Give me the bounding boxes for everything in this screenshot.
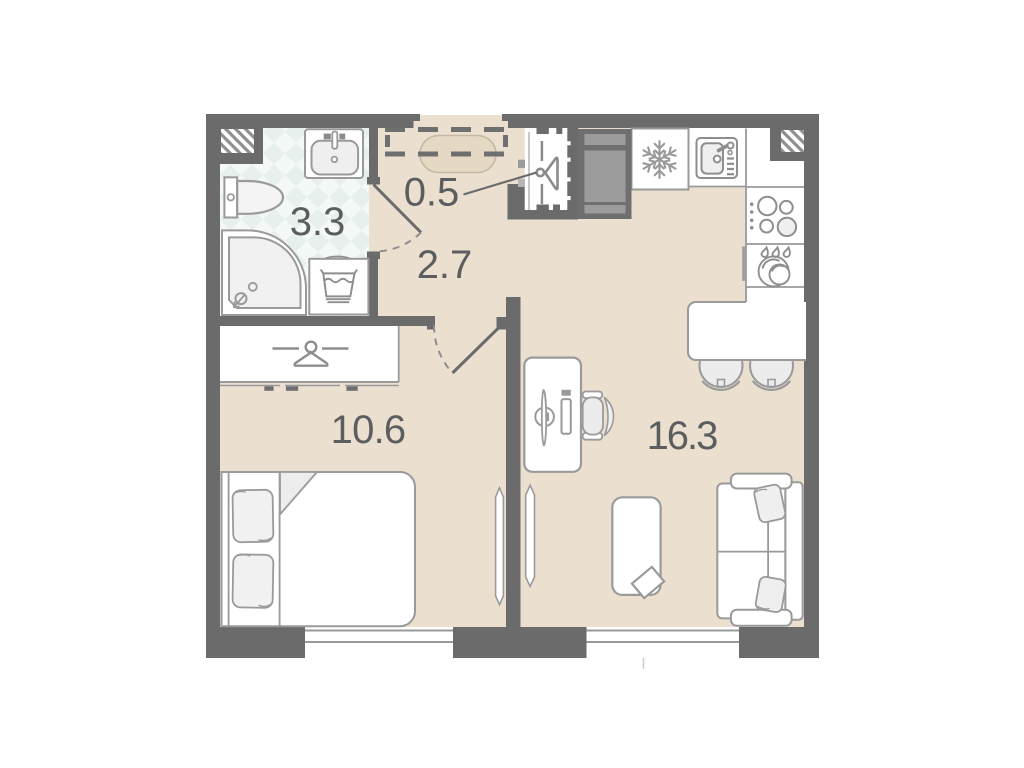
svg-text:0.5: 0.5 (404, 171, 460, 215)
svg-text:3.3: 3.3 (290, 200, 346, 244)
svg-text:16.3: 16.3 (647, 414, 718, 458)
svg-text:2.7: 2.7 (417, 243, 473, 287)
svg-text:10.6: 10.6 (331, 408, 406, 452)
